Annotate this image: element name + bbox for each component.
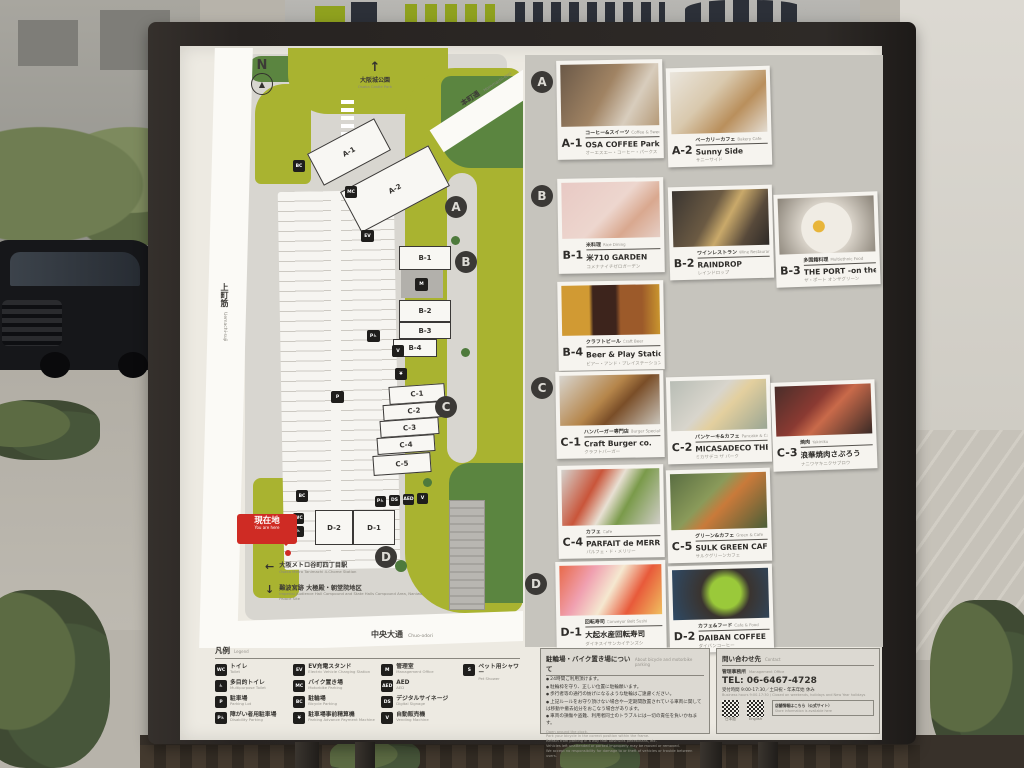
building-c2-label: C-2	[407, 407, 421, 416]
motorbike-parking-icon: MC	[345, 186, 357, 198]
building-c1-label: C-1	[410, 390, 424, 399]
shop-card-c1: C-1 ハンバーガー専門店Burger Specialty Store Craf…	[555, 370, 665, 459]
vending-glyph: V	[421, 496, 424, 501]
shop-card-d1: D-1 回転寿司Conveyor Belt Sushi 大起水産回転寿司 ダイキ…	[555, 560, 667, 651]
shop-category-en: Bakery Cafe	[737, 136, 761, 142]
parking-bullet: 24時間ご利用頂けます。	[546, 677, 704, 684]
qr-code-icon	[722, 700, 739, 717]
legend-jp: ペット用シャワー	[478, 664, 520, 677]
sign-leg	[355, 742, 375, 768]
legend-item: WCトイレToilet	[215, 664, 287, 676]
legend-en: Vending Machine	[396, 718, 428, 722]
contact-office-en: Management Office	[749, 670, 784, 674]
disability-parking-icon: P♿	[215, 712, 227, 724]
planter-soil	[140, 745, 920, 768]
shop-name: SULK GREEN CAFE	[695, 542, 768, 553]
shop-photo	[559, 374, 660, 426]
shop-photo	[670, 379, 767, 431]
legend-en: Parking Lot	[230, 702, 251, 706]
shop-card-c5: C-5 グリーン&カフェGreen & Cafe SULK GREEN CAFE…	[666, 468, 772, 564]
disability-parking-icon: P♿	[367, 330, 380, 342]
contact-office-jp: 管理事務所	[722, 668, 746, 675]
shop-name: MICASADECO THE PARK	[695, 443, 768, 454]
digital-signage-icon: DS	[389, 495, 400, 506]
disability-glyph: P♿	[370, 334, 377, 339]
legend-glyph: MC	[295, 684, 303, 689]
pet-shower-glyph: V	[396, 349, 399, 354]
shop-reading: パルフェ・ド・メリリー	[586, 548, 661, 555]
legend-en: Disability Parking	[230, 718, 276, 722]
north-poi-jp: 大阪城公園	[345, 75, 405, 84]
car-wheel	[40, 352, 70, 378]
payment-machine-icon: ¥	[293, 712, 305, 724]
shop-category-jp: コーヒー&スイーツ	[585, 129, 629, 137]
shop-photo	[561, 181, 660, 239]
shop-number: A-1	[561, 129, 582, 156]
metro-entrance-structure	[449, 500, 485, 610]
contact-office: 管理事務所 Management Office	[722, 668, 874, 675]
road-left-jp: 上町筋	[220, 283, 229, 307]
legend-en: Toilet	[230, 670, 247, 674]
direction-palace-en: Imperial Audience Hall Compound and Stat…	[279, 592, 435, 601]
you-are-here-badge: 現在地 You are here	[237, 514, 297, 544]
shop-card-b4: B-4 クラフトビールCraft Beer Beer & Play Statio…	[557, 280, 665, 371]
payment-machine-icon: ¥	[395, 368, 407, 380]
disability-glyph: P♿	[377, 499, 384, 504]
building-a1-label: A-1	[341, 145, 356, 158]
bicycle-parking-icon: BC	[293, 160, 305, 172]
sign-leg	[758, 742, 778, 768]
building-a2-label: A-2	[387, 182, 402, 195]
directory-badge-a-label: A	[537, 75, 546, 89]
road-bottom-label: 中央大通 Chuo-odori	[371, 622, 433, 641]
logo-glyph-fragment	[515, 2, 665, 22]
direction-station-en: Osaka Metro Tanimachi 4-Chome Station	[279, 569, 356, 574]
building-d2: D-2	[315, 510, 353, 545]
car-grille	[2, 300, 62, 346]
shop-category-jp: 焼肉	[800, 438, 810, 445]
building-b1-label: B-1	[418, 254, 431, 262]
shop-category-en: Wine Restaurant	[739, 249, 769, 255]
building-b2: B-2	[399, 300, 451, 322]
legend-item: MCバイク置き場Motorbike Parking	[293, 680, 375, 692]
building-d1: D-1	[353, 510, 395, 545]
building-c3-label: C-3	[403, 423, 417, 432]
legend-title: 凡例 Legend	[215, 645, 520, 659]
multipurpose-glyph: ♿	[296, 529, 300, 534]
map-badge-d: D	[375, 546, 397, 568]
qr-label: English	[747, 717, 764, 721]
logo-glyph-fragment	[351, 2, 377, 22]
shop-number: B-2	[673, 250, 694, 278]
you-are-here-dot	[285, 550, 291, 556]
legend-item: EVEV充電スタンドElectric Vehicle Charging Stat…	[293, 664, 375, 676]
legend-title-jp: 凡例	[215, 645, 230, 656]
map-badge-c-label: C	[442, 400, 451, 414]
north-poi-en: Osaka Castle Park	[345, 84, 405, 89]
directory-badge-b: B	[531, 185, 553, 207]
you-are-here-en: You are here	[237, 526, 297, 530]
contact-note: 店舗情報はこちら（公式サイト） Store information is ava…	[772, 700, 874, 716]
shop-category-jp: ハンバーガー専門店	[584, 428, 629, 436]
logo-glyph-fragment	[405, 4, 495, 22]
legend-en: Bicycle Parking	[308, 702, 337, 706]
shop-photo	[778, 195, 876, 254]
shop-reading: ダイキスイサンカイテンズシ	[585, 640, 663, 647]
legend-en: Electric Vehicle Charging Station	[308, 670, 370, 674]
shop-reading: ザ・ポート オンザグリーン	[804, 275, 877, 284]
legend-glyph: M	[385, 668, 389, 673]
shop-number: B-3	[780, 257, 802, 285]
shop-directory: A B C D A-1 コーヒー&スイーツCoffee & Sweets OSA…	[525, 55, 883, 647]
left-arrow-icon: ←	[265, 560, 274, 573]
digital-signage-icon: DS	[381, 696, 393, 708]
legend-en: AED	[396, 686, 409, 690]
shop-category-en: Coffee & Sweets	[631, 129, 659, 134]
shop-name: 米710 GARDEN	[586, 251, 661, 263]
contact-title-en: Contact	[765, 657, 781, 662]
tree-dot	[423, 478, 432, 487]
parking-title-jp: 駐輪場・バイク置き場について	[546, 653, 631, 673]
shop-photo	[560, 63, 659, 127]
directory-badge-c-label: C	[538, 381, 547, 395]
contact-hours-en: Business hours 9:00-17:30 / Closed on we…	[722, 693, 874, 697]
bicycle-parking-icon: BC	[293, 696, 305, 708]
shop-photo	[561, 468, 660, 526]
vending-machine-icon: V	[381, 712, 393, 724]
management-office-icon: M	[381, 664, 393, 676]
legend-item: M管理室Management Office	[381, 664, 457, 676]
compass-icon: ▲	[251, 73, 273, 95]
parking-bullet: 駐輪枠を守り、正しい位置に駐輪願います。	[546, 685, 704, 692]
ev-glyph: EV	[364, 234, 371, 239]
north-poi: ↑ 大阪城公園 Osaka Castle Park	[345, 60, 405, 89]
shop-card-a2: A-2 ベーカリーカフェBakery Cafe Sunny Side サニーサイ…	[666, 66, 773, 168]
legend-item: ♿多目的トイレMultipurpose Toilet	[215, 680, 287, 692]
road-bottom-en: Chuo-odori	[408, 634, 433, 639]
legend-glyph: P♿	[217, 716, 224, 721]
legend: 凡例 Legend WCトイレToilet ♿多目的トイレMultipurpos…	[215, 645, 520, 735]
parking-bullet: 歩行者等の通行の妨げになるような駐輪はご遠慮ください。	[546, 692, 704, 699]
legend-item: V自動販売機Vending Machine	[381, 712, 457, 724]
motorbike-glyph: MC	[347, 190, 355, 195]
parking-notes-en: Open around the clock. Park your bicycle…	[546, 730, 704, 759]
bicycle-glyph: BC	[299, 494, 306, 499]
legend-glyph: WC	[217, 668, 225, 673]
shop-reading: クラフトバーガー	[584, 448, 661, 455]
aed-icon: AED	[403, 494, 414, 505]
bicycle-parking-icon: BC	[296, 490, 308, 502]
qr-code-icon	[747, 700, 764, 717]
legend-en: Multipurpose Toilet	[230, 686, 266, 690]
contact-tel: TEL: 06-6467-4728	[722, 676, 874, 686]
shop-category-jp: グリーン&カフェ	[695, 532, 734, 540]
qr-english: English	[747, 700, 764, 721]
legend-en: Parking Advance Payment Machine	[308, 718, 375, 722]
shop-name: PARFAIT de MERRILY	[586, 538, 661, 548]
legend-item: BC駐輪場Bicycle Parking	[293, 696, 375, 708]
parking-title-en: About bicycle and motorbike parking	[635, 657, 704, 667]
shop-category-jp: ベーカリーカフェ	[695, 136, 735, 144]
vending-machine-icon: V	[417, 493, 428, 504]
shop-photo	[670, 70, 768, 134]
building-b3: B-3	[399, 322, 451, 339]
directory-badge-a: A	[531, 71, 553, 93]
payment-glyph: ¥	[399, 372, 402, 377]
legend-glyph: EV	[296, 668, 303, 673]
site-map: 上町筋 Uemachi-suji 本町通 Hommachi-dori 中央大通 …	[193, 48, 523, 648]
map-badge-b: B	[455, 251, 477, 273]
shop-number: C-1	[560, 429, 581, 456]
legend-en: Motorbike Parking	[308, 686, 343, 690]
legend-column: WCトイレToilet ♿多目的トイレMultipurpose Toilet P…	[215, 664, 287, 724]
legend-column: M管理室Management Office AEDAEDAED DSデジタルサイ…	[381, 664, 457, 724]
shop-category-jp: ワインレストラン	[697, 249, 737, 257]
qr-japanese: 日本語	[722, 700, 739, 722]
photo-scene: 上町筋 Uemachi-suji 本町通 Hommachi-dori 中央大通 …	[0, 0, 1024, 768]
pet-shower-icon: V	[392, 345, 404, 357]
car-windows	[10, 252, 140, 286]
background-wall-right	[900, 0, 1024, 430]
building-b3-label: B-3	[418, 327, 431, 335]
directory-badge-b-label: B	[537, 189, 546, 203]
legend-glyph: V	[385, 716, 388, 721]
shop-category-jp: クラフトビール	[586, 338, 621, 346]
shop-card-b2: B-2 ワインレストランWine Restaurant RAINDROP レイン…	[668, 185, 774, 281]
ev-charging-icon: EV	[361, 230, 374, 242]
legend-glyph: ¥	[298, 716, 301, 721]
parking-lot-lane	[331, 198, 341, 563]
map-badge-c: C	[435, 396, 457, 418]
shop-card-c2: C-2 パンケーキ&カフェPancake & Cafe MICASADECO T…	[666, 375, 772, 465]
shop-category-jp: カフェ	[586, 528, 601, 535]
legend-glyph: BC	[296, 700, 303, 705]
legend-column: EVEV充電スタンドElectric Vehicle Charging Stat…	[293, 664, 375, 724]
contact-title: 問い合わせ先 Contact	[722, 653, 874, 666]
road-left-en: Uemachi-suji	[222, 312, 227, 341]
tree-dot	[461, 348, 470, 357]
parking-bullet: 車両の損傷や盗難、利用者同士のトラブルには一切の責任を負いかねます。	[546, 714, 704, 727]
building-b1: B-1	[399, 246, 451, 270]
building-window	[18, 20, 78, 66]
shop-card-c4: C-4 カフェCafe PARFAIT de MERRILY パルフェ・ド・メリ…	[557, 464, 665, 559]
shop-number: A-2	[672, 137, 693, 165]
shop-category-jp: 多国籍料理	[803, 256, 828, 264]
shop-photo	[775, 383, 873, 436]
legend-item: P♿障がい者用駐車場Disability Parking	[215, 712, 287, 724]
north-arrow-icon: ↑	[345, 60, 405, 75]
shrub	[0, 590, 110, 768]
building-c4-label: C-4	[399, 440, 413, 449]
multipurpose-toilet-icon: ♿	[215, 680, 227, 692]
car-wheel	[118, 352, 148, 378]
shop-category-en: Yakiniku	[812, 439, 828, 445]
legend-glyph: P	[219, 700, 222, 705]
down-arrow-icon: ↓	[265, 583, 274, 596]
legend-column: Sペット用シャワーPet Shower	[463, 664, 520, 724]
contact-title-jp: 問い合わせ先	[722, 653, 761, 663]
shop-reading: オーエスエー・コーヒー・パークス	[585, 149, 659, 156]
legend-item: AEDAEDAED	[381, 680, 457, 692]
management-office-icon: M	[415, 278, 428, 291]
shop-number: C-4	[562, 528, 583, 555]
map-badge-d-label: D	[381, 550, 391, 564]
shop-reading: ナニワヤキニクサブロウ	[801, 459, 874, 468]
shop-name: DAIBAN COFFEE	[698, 632, 770, 643]
management-office-glyph: M	[419, 282, 423, 287]
legend-item: ¥駐車場事前精算機Parking Advance Payment Machine	[293, 712, 375, 724]
direction-palace-site: ↓ 難波宮跡 大極殿・朝堂院地区 Imperial Audience Hall …	[265, 583, 435, 601]
legend-glyph: AED	[382, 684, 392, 689]
shop-category-en: Cafe	[603, 529, 612, 534]
shop-name: 大起水産回転寿司	[585, 628, 663, 640]
shop-number: C-2	[671, 434, 692, 462]
shop-name: OSA COFFEE Parks	[585, 139, 659, 149]
shop-category-jp: カフェ&フード	[698, 622, 733, 630]
shop-photo	[672, 189, 769, 247]
shop-category-jp: 回転寿司	[585, 618, 605, 625]
shop-card-c3: C-3 焼肉Yakiniku 浪華焼肉さぶろう ナニワヤキニクサブロウ	[770, 379, 877, 472]
shop-number: B-4	[562, 338, 583, 367]
shop-reading: サニーサイド	[696, 156, 768, 164]
legend-item: DSデジタルサイネージDigital Signage	[381, 696, 457, 708]
compass: N ▲	[251, 58, 273, 95]
direction-station: ← 大阪メトロ谷町四丁目駅 Osaka Metro Tanimachi 4-Ch…	[265, 560, 356, 574]
shop-photo	[670, 472, 767, 530]
parking-note-en: We accept no responsibility for damage t…	[546, 749, 704, 759]
shop-category-jp: 米料理	[586, 241, 601, 248]
aed-icon: AED	[381, 680, 393, 692]
parking-bullet: 上記ルールをお守り頂けない場合や一定期間放置されている車両に関しては移動や撤去処…	[546, 700, 704, 713]
legend-en: Pet Shower	[478, 677, 520, 681]
shop-category-jp: パンケーキ&カフェ	[695, 432, 740, 440]
shop-category-en: Cafe & Food	[734, 622, 758, 628]
shop-category-en: Conveyor Belt Sushi	[607, 618, 647, 624]
shrub	[0, 400, 100, 460]
tree-dot	[395, 560, 407, 572]
shop-name: RAINDROP	[697, 259, 770, 270]
shop-category-en: Rice Dining	[603, 242, 626, 247]
building-c5-label: C-5	[395, 460, 409, 469]
pet-shower-icon: S	[463, 664, 475, 676]
legend-en: Management Office	[396, 670, 433, 674]
signage-glyph: DS	[391, 498, 398, 503]
sign-leg	[295, 742, 319, 768]
building-b2-label: B-2	[418, 307, 431, 315]
shop-reading: ミカサデコ ザ パーク	[695, 453, 768, 461]
legend-item: P駐車場Parking Lot	[215, 696, 287, 708]
logo-glyph-fragment	[315, 6, 345, 22]
shop-name: Beer & Play Station ちるちる	[586, 348, 661, 360]
directory-badge-c: C	[531, 377, 553, 399]
shop-category-en: Burger Specialty Store	[631, 428, 661, 434]
parking-icon: P	[215, 696, 227, 708]
compass-n-label: N	[251, 58, 273, 73]
legend-glyph: S	[468, 668, 471, 673]
shop-number: C-5	[671, 533, 692, 561]
map-badge-b-label: B	[461, 255, 470, 269]
shop-number: D-2	[673, 623, 695, 651]
disability-parking-icon: P♿	[375, 496, 386, 507]
legend-title-en: Legend	[234, 649, 249, 654]
directory-badge-d-label: D	[531, 577, 541, 591]
map-badge-a: A	[445, 196, 467, 218]
ev-charging-icon: EV	[293, 664, 305, 676]
shop-reading: サルクグリーンカフェ	[696, 552, 769, 560]
parking-notice-title: 駐輪場・バイク置き場について About bicycle and motorbi…	[546, 653, 704, 676]
shop-category-en: Green & Cafe	[736, 532, 763, 538]
map-badge-a-label: A	[451, 200, 460, 214]
legend-item: Sペット用シャワーPet Shower	[463, 664, 520, 681]
shop-name: Craft Burger co.	[584, 438, 661, 448]
qr-label: 日本語	[722, 717, 739, 722]
shop-category-en: Multiethnic Food	[830, 256, 863, 262]
shop-card-b1: B-1 米料理Rice Dining 米710 GARDEN コメナナイチゼロガ…	[557, 177, 665, 274]
shop-name: Sunny Side	[696, 146, 768, 157]
logo-glyph-fragment	[685, 0, 805, 24]
contact-note-en: Store information is available here	[775, 709, 871, 713]
road-left-label: 上町筋 Uemachi-suji	[215, 283, 234, 341]
shop-category-en: Pancake & Cafe	[742, 433, 768, 439]
contact-box: 問い合わせ先 Contact 管理事務所 Management Office T…	[716, 648, 880, 734]
contact-qr-row: 日本語 English 店舗情報はこちら（公式サイト） Store inform…	[722, 700, 874, 722]
shop-card-d2: D-2 カフェ&フードCafe & Food DAIBAN COFFEE ダイバ…	[668, 564, 774, 654]
shop-number: B-1	[562, 241, 583, 270]
shop-category-en: Craft Beer	[623, 338, 643, 343]
motorbike-parking-icon: MC	[293, 680, 305, 692]
shop-number: D-1	[560, 619, 582, 648]
parking-icon-map: P	[331, 391, 344, 403]
shop-reading: コメナナイチゼロガーデン	[586, 263, 660, 270]
building-d2-label: D-2	[327, 524, 341, 532]
direction-station-jp: 大阪メトロ谷町四丁目駅	[279, 560, 356, 569]
legend-glyph: ♿	[219, 684, 223, 689]
directory-badge-d: D	[525, 573, 547, 595]
shop-card-b3: B-3 多国籍料理Multiethnic Food THE PORT -on t…	[773, 191, 880, 288]
shop-photo	[559, 564, 662, 616]
bicycle-glyph: BC	[296, 164, 303, 169]
aed-glyph: AED	[403, 497, 413, 502]
building-b4-label: B-4	[408, 344, 421, 352]
shop-reading: ビアー・アンド・プレイステーション・チルチル	[586, 360, 660, 367]
shop-photo	[561, 284, 660, 336]
shop-card-a1: A-1 コーヒー&スイーツCoffee & Sweets OSA COFFEE …	[556, 59, 664, 160]
building-c5: C-5	[372, 452, 431, 476]
tree-dot	[451, 236, 460, 245]
shop-photo	[672, 568, 769, 620]
legend-glyph: DS	[384, 700, 391, 705]
parking-glyph: P	[336, 395, 339, 400]
shop-number: C-3	[776, 439, 798, 469]
road-bottom-jp: 中央大通	[371, 630, 403, 639]
management-office-block: M	[401, 270, 443, 298]
shop-reading: レインドロップ	[698, 269, 771, 277]
building-d1-label: D-1	[367, 524, 381, 532]
toilet-icon: WC	[215, 664, 227, 676]
parking-notice-box: 駐輪場・バイク置き場について About bicycle and motorbi…	[540, 648, 710, 734]
sign-panel: 上町筋 Uemachi-suji 本町通 Hommachi-dori 中央大通 …	[180, 46, 882, 740]
legend-grid: WCトイレToilet ♿多目的トイレMultipurpose Toilet P…	[215, 664, 520, 724]
legend-en: Digital Signage	[396, 702, 448, 706]
